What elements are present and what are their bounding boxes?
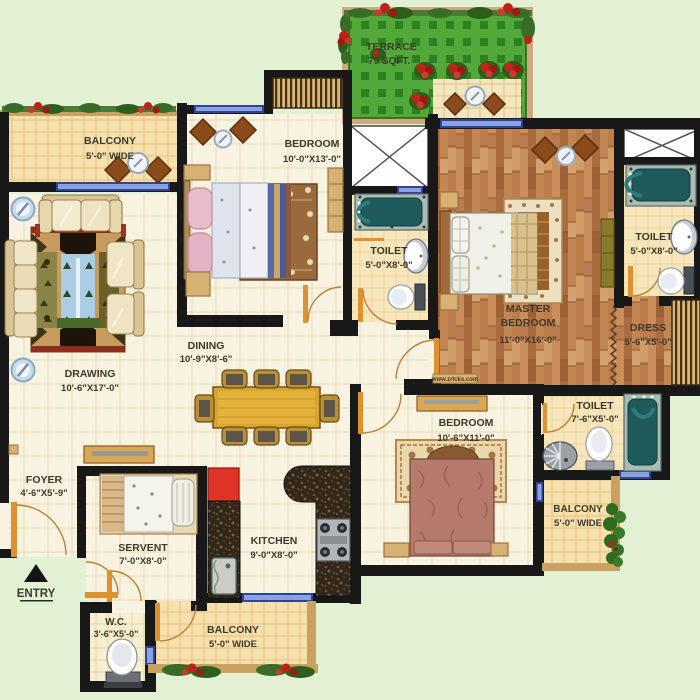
svg-text:DINING: DINING bbox=[188, 340, 225, 352]
svg-text:ENTRY: ENTRY bbox=[17, 588, 56, 600]
svg-text:SERVENT: SERVENT bbox=[118, 542, 168, 554]
svg-text:BEDROOM: BEDROOM bbox=[439, 417, 494, 429]
svg-text:KITCHEN: KITCHEN bbox=[251, 535, 298, 547]
svg-text:BALCONY: BALCONY bbox=[84, 135, 136, 147]
svg-text:FOYER: FOYER bbox=[26, 474, 63, 486]
svg-text:3'-6"X5'-0": 3'-6"X5'-0" bbox=[94, 629, 139, 639]
svg-text:10'-6"X11'-0": 10'-6"X11'-0" bbox=[437, 433, 494, 444]
svg-text:BALCONY: BALCONY bbox=[207, 624, 259, 636]
svg-text:MASTER: MASTER bbox=[506, 303, 551, 315]
svg-text:TOILET: TOILET bbox=[576, 400, 614, 412]
svg-text:11'-0"X16'-0": 11'-0"X16'-0" bbox=[499, 335, 556, 346]
svg-text:BEDROOM: BEDROOM bbox=[501, 317, 556, 329]
svg-text:5'-0" WIDE: 5'-0" WIDE bbox=[554, 518, 602, 529]
svg-text:10'-9"X8'-6": 10'-9"X8'-6" bbox=[180, 354, 233, 365]
svg-text:4'-6"X5'-9": 4'-6"X5'-9" bbox=[20, 488, 67, 499]
svg-text:W.C.: W.C. bbox=[105, 617, 127, 628]
svg-text:www.zrlcks.com: www.zrlcks.com bbox=[431, 377, 478, 383]
svg-text:TERRACE: TERRACE bbox=[366, 41, 417, 53]
svg-text:7'-6"X5'-0": 7'-6"X5'-0" bbox=[571, 414, 618, 425]
svg-text:TOILET: TOILET bbox=[370, 245, 408, 257]
svg-text:5'-0"X8'-0": 5'-0"X8'-0" bbox=[365, 260, 412, 271]
svg-text:7'-0"X8'-0": 7'-0"X8'-0" bbox=[119, 556, 166, 567]
svg-text:10'-0"X13'-0": 10'-0"X13'-0" bbox=[283, 154, 341, 165]
svg-text:9'-0"X8'-0": 9'-0"X8'-0" bbox=[250, 550, 297, 561]
svg-text:79 SQFT.: 79 SQFT. bbox=[368, 56, 410, 67]
svg-text:BEDROOM: BEDROOM bbox=[285, 138, 340, 150]
svg-text:DRESS: DRESS bbox=[630, 322, 666, 334]
svg-text:5'-6"X5'-0": 5'-6"X5'-0" bbox=[624, 337, 671, 348]
svg-text:5'-0"X8'-0": 5'-0"X8'-0" bbox=[630, 246, 677, 257]
svg-text:5'-0" WIDE: 5'-0" WIDE bbox=[209, 639, 257, 650]
svg-text:10'-6"X17'-0": 10'-6"X17'-0" bbox=[61, 383, 119, 394]
svg-text:5'-0" WIDE: 5'-0" WIDE bbox=[86, 151, 134, 162]
svg-text:DRAWING: DRAWING bbox=[65, 368, 116, 380]
svg-text:BALCONY: BALCONY bbox=[553, 504, 603, 515]
svg-text:TOILET: TOILET bbox=[635, 231, 673, 243]
